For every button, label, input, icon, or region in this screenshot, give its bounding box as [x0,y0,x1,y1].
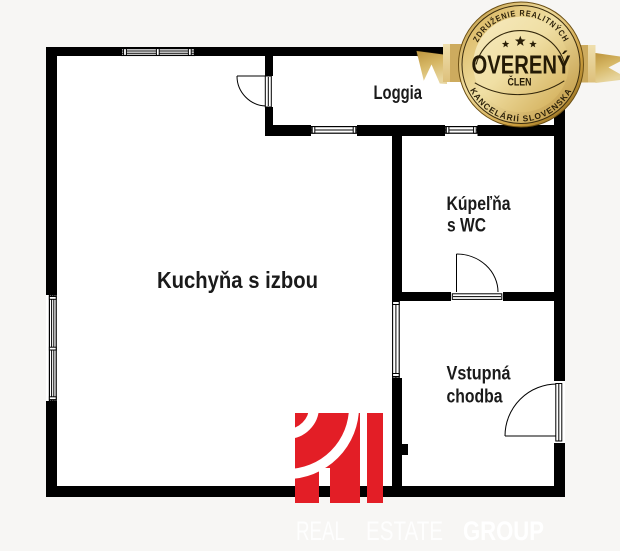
svg-text:chodba: chodba [447,387,503,408]
svg-text:Loggia: Loggia [374,83,423,104]
svg-text:Vstupná: Vstupná [447,364,511,385]
svg-text:OVERENÝ: OVERENÝ [472,50,571,80]
svg-text:ČLEN: ČLEN [508,76,532,89]
svg-text:GROUP: GROUP [463,516,544,546]
svg-text:REAL: REAL [296,516,345,546]
svg-text:Kuchyňa s izbou: Kuchyňa s izbou [157,267,318,293]
svg-text:Kúpeľňa: Kúpeľňa [447,194,511,215]
svg-text:ESTATE: ESTATE [366,516,443,546]
svg-text:s WC: s WC [447,216,486,237]
